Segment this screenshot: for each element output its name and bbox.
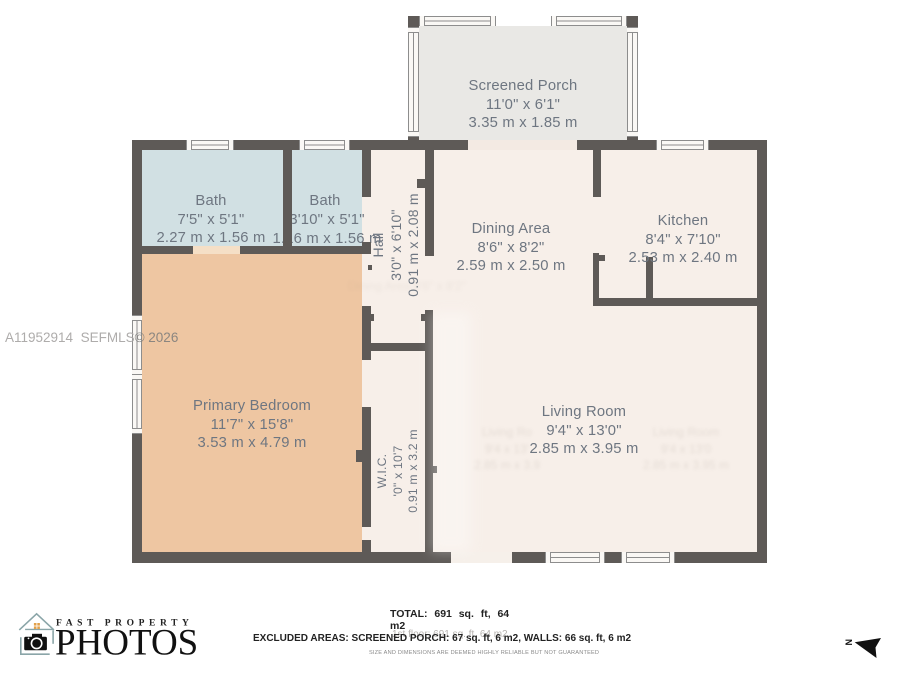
svg-text:N: N	[844, 639, 854, 646]
svg-text:PHOTOS: PHOTOS	[55, 623, 198, 664]
